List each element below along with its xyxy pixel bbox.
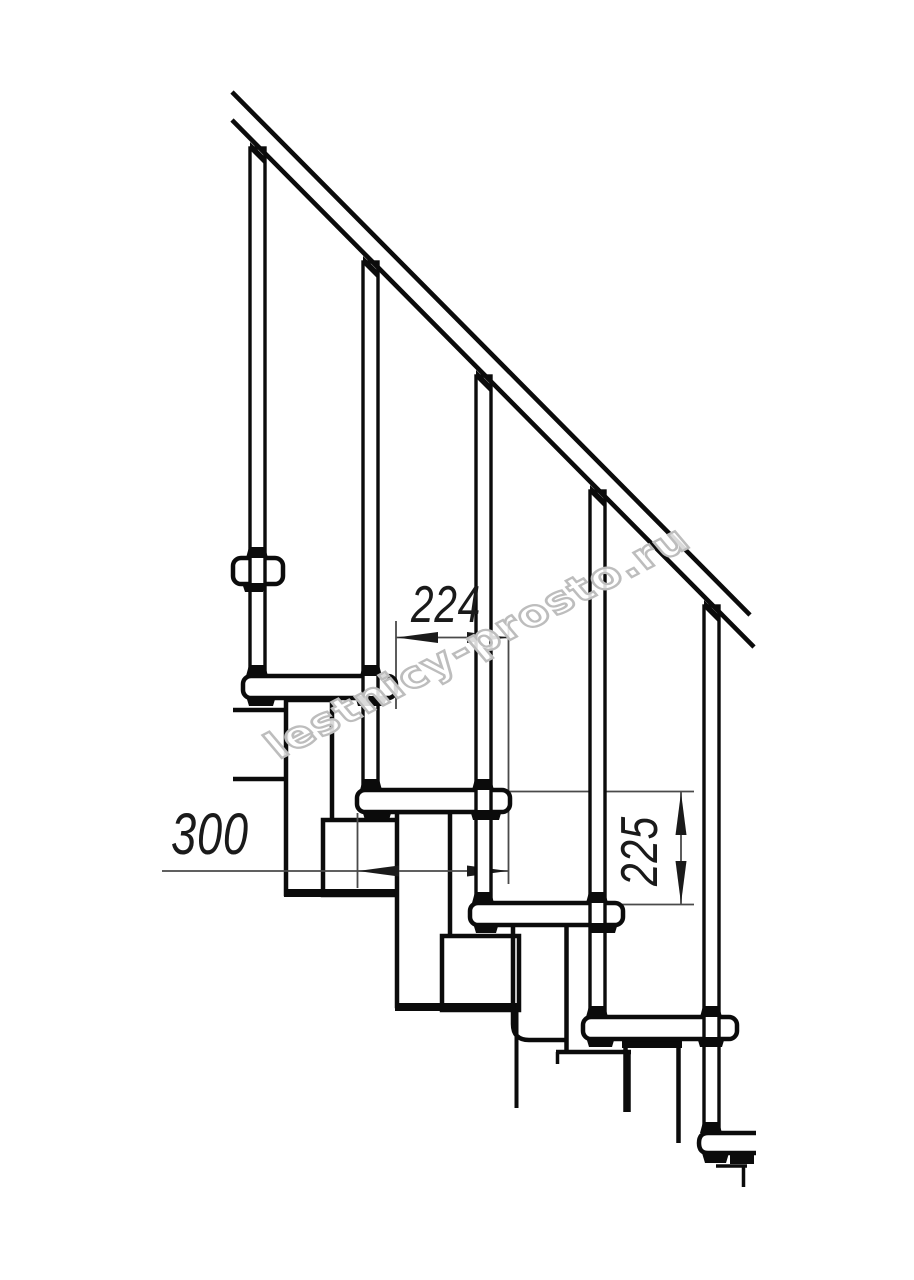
module-2-base-plate [395,1003,519,1011]
nut [697,1037,725,1047]
nut [586,1037,615,1047]
staircase-technical-drawing: 224 300 225 lestnicy-prosto.ru [0,0,914,1280]
collar [360,779,382,790]
dim-225-arrow-down [676,861,687,904]
collar [586,1006,608,1017]
dim-225-arrow-up [676,793,687,836]
module-1-base-plate [284,889,404,897]
horizontal-module-2 [442,936,519,1010]
nut [246,696,276,706]
nut [702,1153,729,1163]
nut [242,583,266,592]
baluster-5 [704,606,719,1133]
nut [362,810,392,820]
handrail-bottom-line [232,120,754,647]
dimension-label-tread-depth: 300 [171,806,249,864]
collar [472,892,494,903]
tread-5-cut [699,1133,756,1153]
collar [472,779,494,790]
dimension-label-riser-height: 225 [614,816,666,886]
nut [470,810,502,820]
collar [586,892,608,903]
nut [588,923,618,933]
horizontal-module-1 [323,820,404,895]
module-5-top-plate-cut [730,1153,754,1164]
baluster-1 [250,148,265,676]
collar [246,665,268,676]
collar [246,547,268,558]
nut [473,923,499,933]
collar [700,1006,722,1017]
collar [700,1122,722,1133]
